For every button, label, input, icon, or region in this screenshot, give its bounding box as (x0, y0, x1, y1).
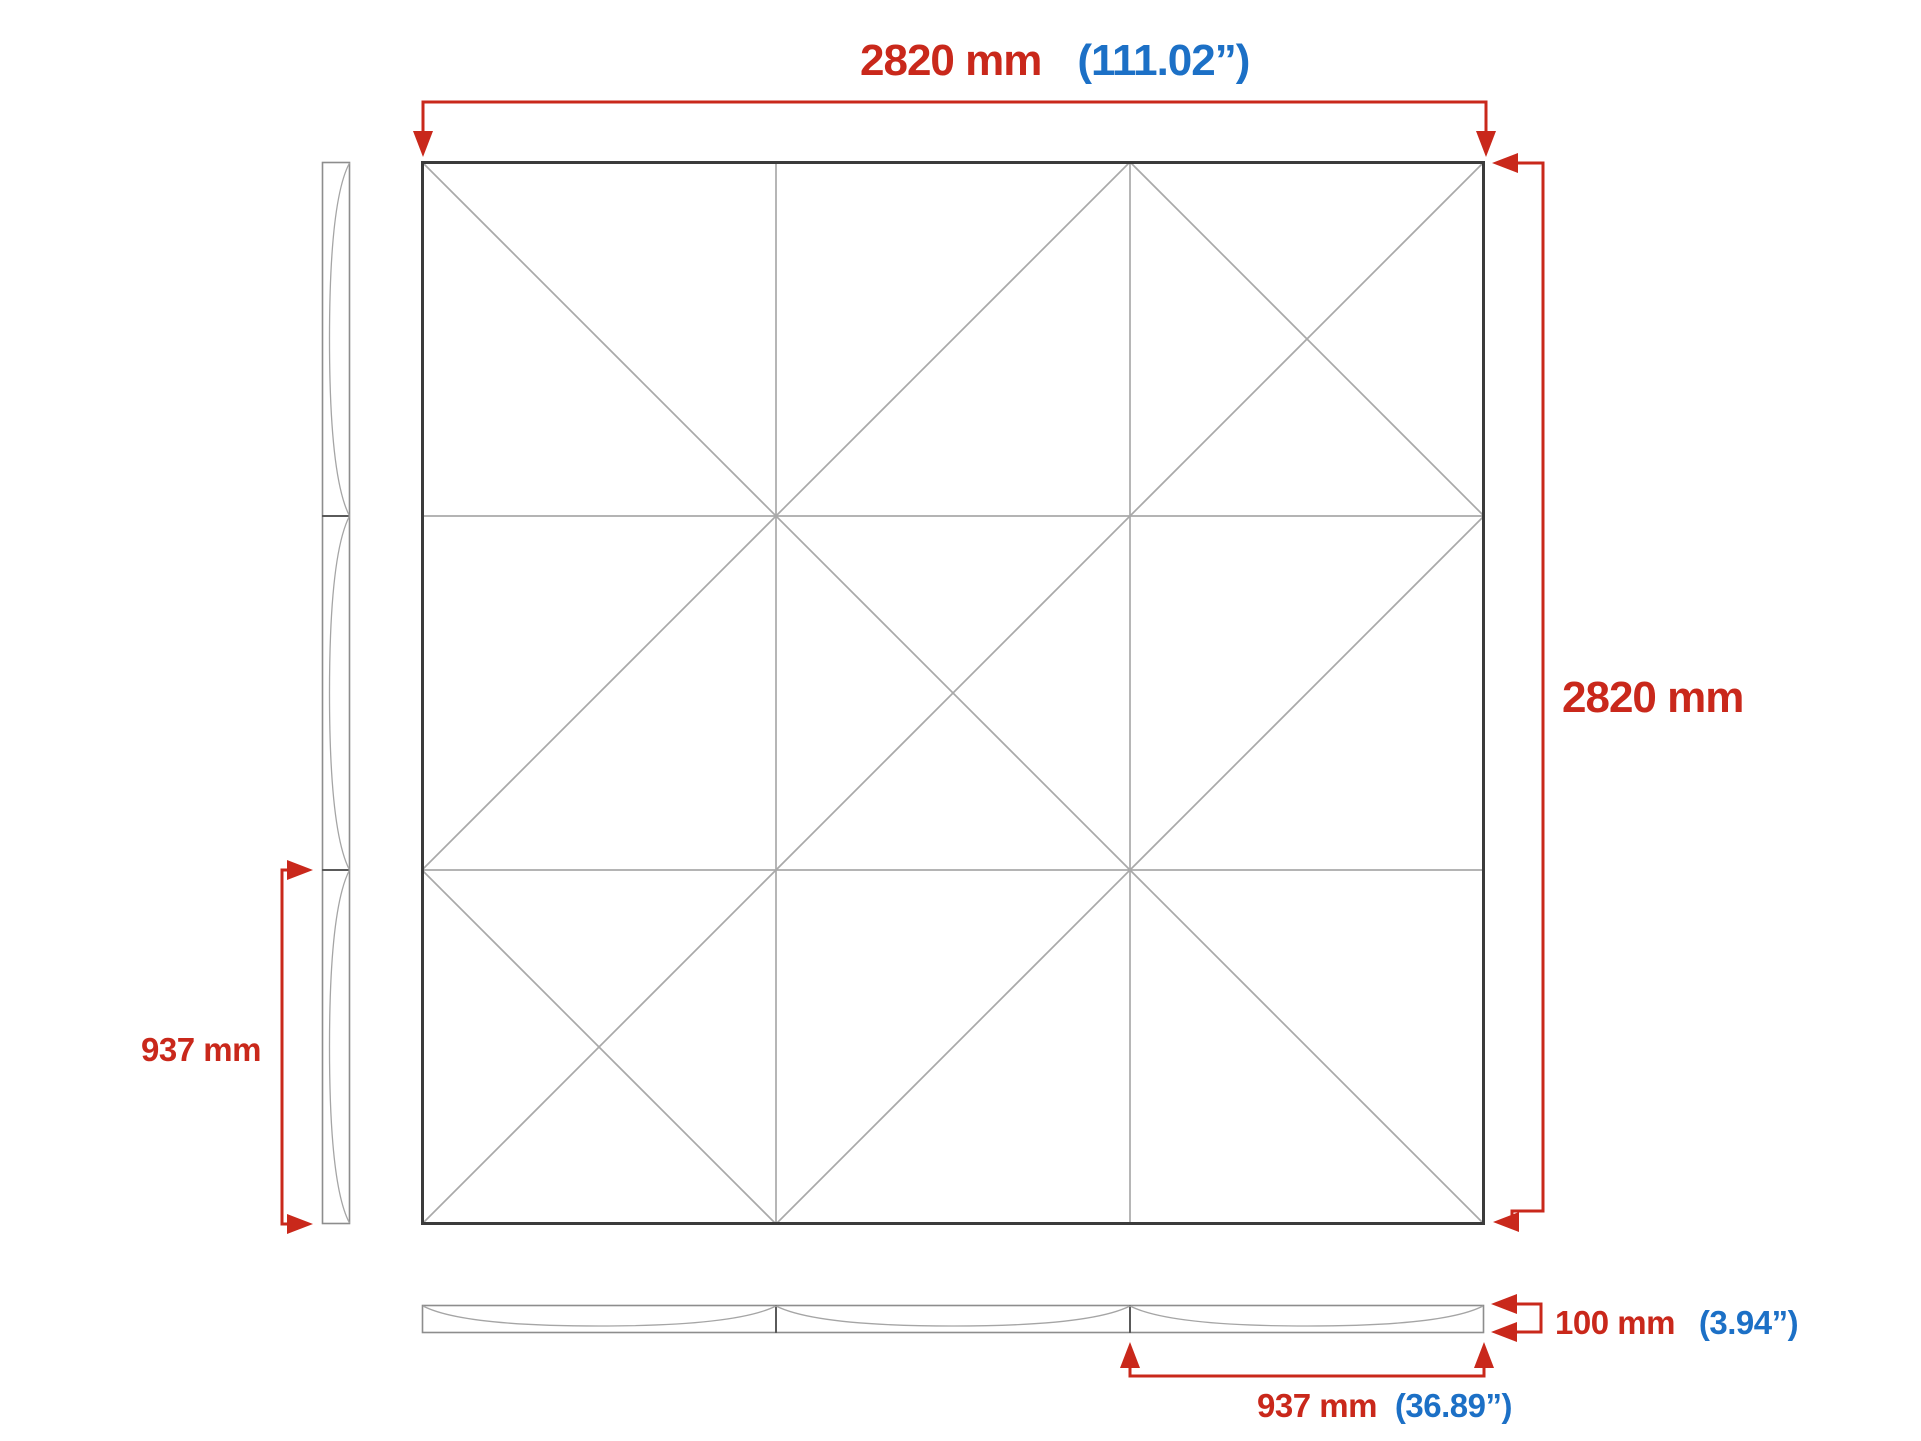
side-profile-outline (323, 163, 350, 1224)
width-inch-value: (111.02”) (1077, 39, 1249, 83)
height-mm-value: 2820 mm (1562, 676, 1743, 720)
thickness-mm-value: 100 mm (1555, 1306, 1675, 1339)
thickness-dimension-label: 100 mm (3.94”) (1555, 1306, 1798, 1339)
arrow-up-icon (1474, 1342, 1494, 1368)
tile-width-dimension-label: 937 mm (36.89”) (1257, 1389, 1512, 1422)
arrow-left-icon (1493, 1212, 1519, 1232)
dim-height-right (1492, 153, 1543, 1232)
dim-tile-height-left (282, 860, 313, 1234)
width-mm-value: 2820 mm (860, 39, 1041, 83)
tile-width-mm-value: 937 mm (1257, 1389, 1377, 1422)
thickness-inch-value: (3.94”) (1699, 1306, 1798, 1339)
bottom-profile (423, 1305, 1484, 1333)
arrow-down-icon (1476, 131, 1496, 157)
arrow-up-icon (1120, 1342, 1140, 1368)
dim-tile-width-bottom (1120, 1342, 1494, 1376)
arrow-left-icon (1491, 1294, 1517, 1314)
arrow-left-icon (1492, 153, 1518, 173)
dim-thickness-right (1491, 1294, 1541, 1342)
height-dimension-label: 2820 mm (1562, 676, 1743, 720)
bottom-profile-curve-1 (423, 1306, 776, 1326)
bottom-profile-curve-3 (1130, 1306, 1483, 1326)
panel-dimension-diagram: 2820 mm (111.02”) 2820 mm 937 mm 100 mm … (0, 0, 1921, 1441)
dim-tile-width-line (1130, 1352, 1484, 1376)
arrow-right-icon (287, 1214, 313, 1234)
dim-width-top (413, 102, 1496, 157)
arrow-left-icon (1491, 1322, 1517, 1342)
dim-thickness-bracket (1517, 1304, 1541, 1332)
arrow-down-icon (413, 131, 433, 157)
dim-height-line (1512, 163, 1543, 1222)
dim-width-line (423, 102, 1486, 133)
side-profile-curve-1 (330, 163, 350, 516)
bottom-profile-curve-2 (776, 1306, 1130, 1326)
tile-height-dimension-label: 937 mm (141, 1033, 261, 1066)
tile-width-inch-value: (36.89”) (1395, 1389, 1512, 1422)
arrow-right-icon (287, 860, 313, 880)
side-profile-curve-2 (330, 516, 350, 870)
tile-height-mm-value: 937 mm (141, 1033, 261, 1066)
front-view (422, 162, 1484, 1224)
side-profile-curve-3 (330, 870, 350, 1223)
bottom-profile-outline (423, 1306, 1484, 1333)
side-profile-left (322, 163, 350, 1224)
width-dimension-label: 2820 mm (111.02”) (860, 39, 1249, 83)
dim-tile-height-line (282, 870, 289, 1224)
